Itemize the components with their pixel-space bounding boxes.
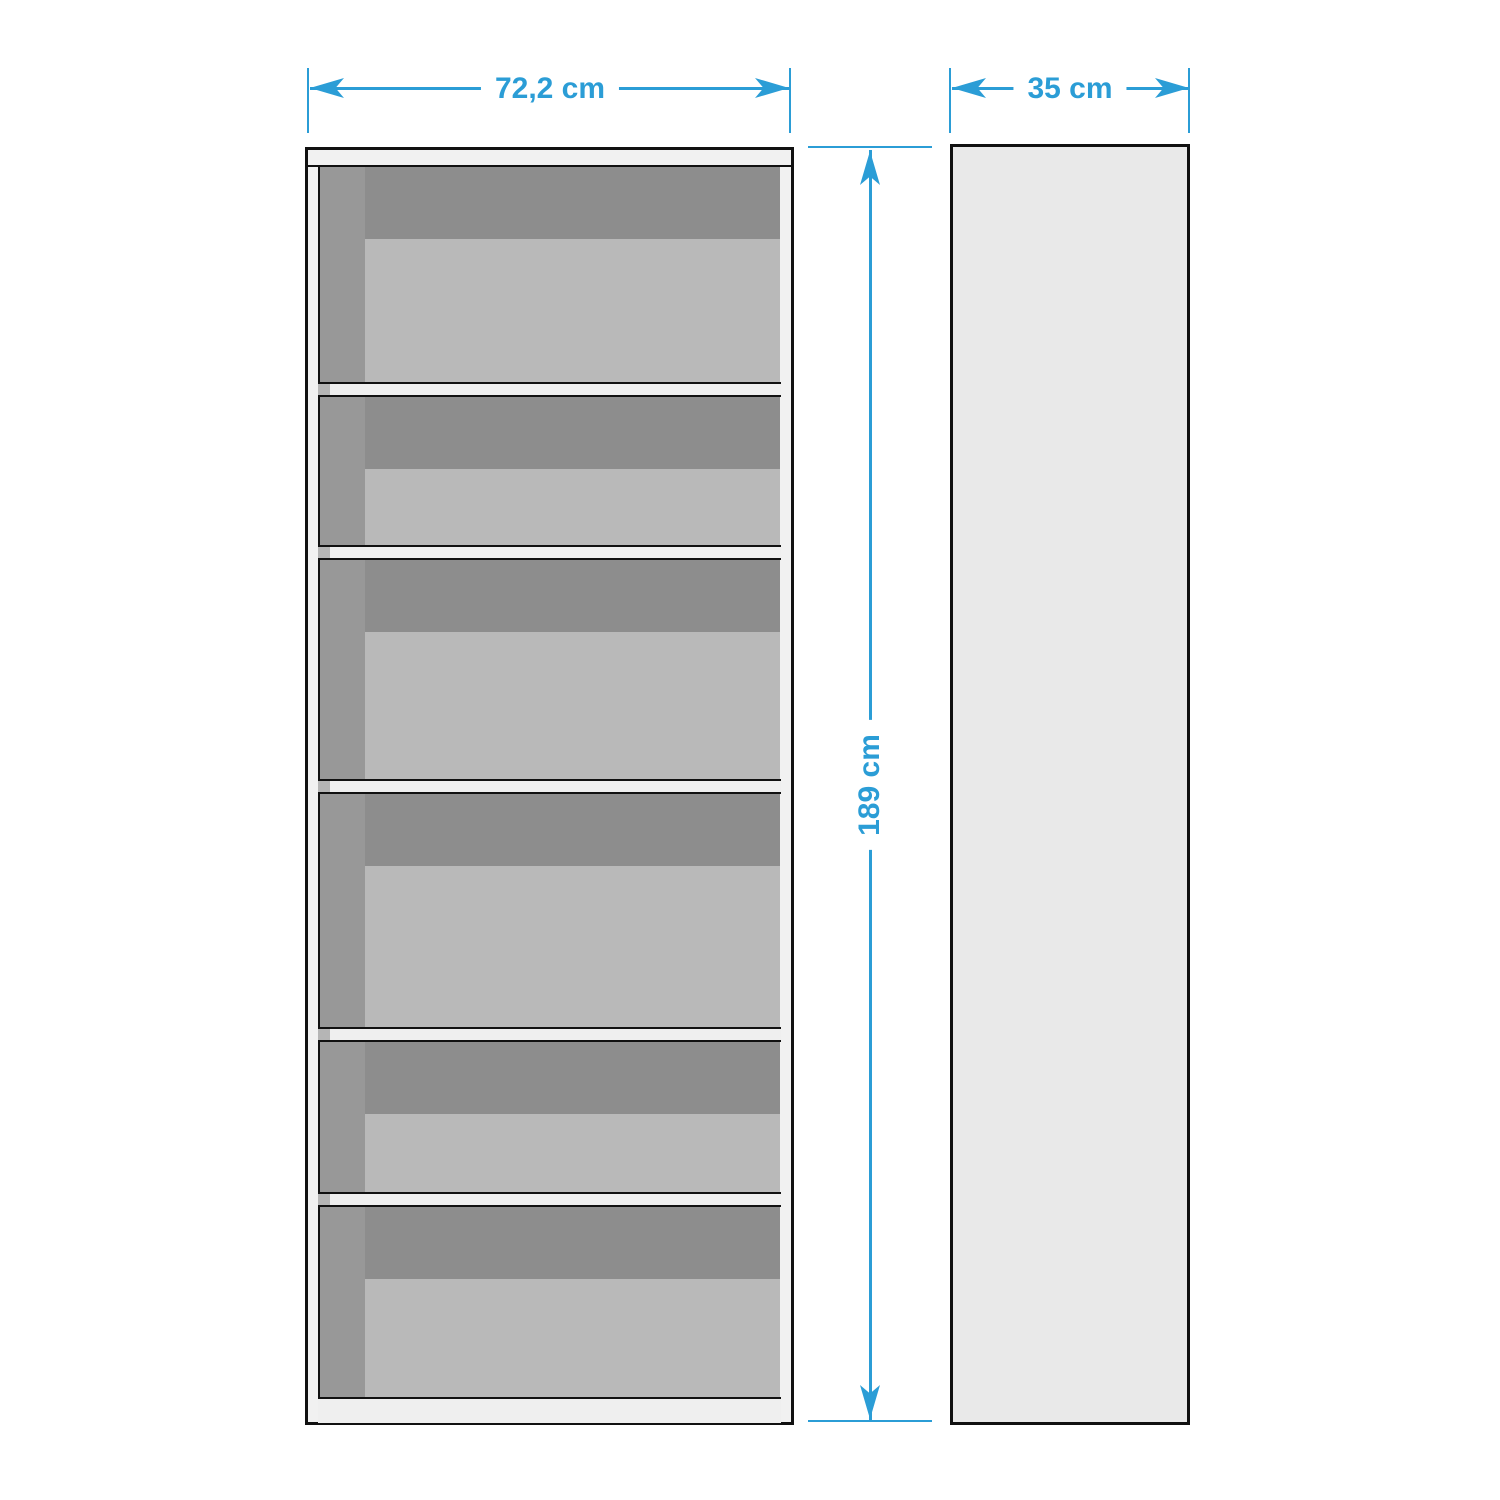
shelf-compartment-5: [318, 1042, 780, 1192]
extension-line: [1188, 68, 1190, 133]
compartment-back-panel: [365, 469, 780, 545]
compartment-back-panel: [365, 632, 780, 779]
dimension-diagram: 72,2 cm 35 cm 189 cm: [0, 0, 1500, 1500]
height-dimension-label: 189 cm: [852, 720, 888, 850]
shelf-compartment-4: [318, 794, 780, 1027]
compartment-top-shadow: [365, 167, 780, 239]
compartment-back-panel: [365, 1114, 780, 1192]
extension-line: [808, 146, 932, 148]
divider-shadow: [318, 547, 330, 558]
compartment-back-panel: [365, 866, 780, 1027]
divider-shadow: [318, 781, 330, 792]
bottom-panel: [318, 1397, 781, 1423]
depth-dimension-label: 35 cm: [1013, 71, 1126, 107]
extension-line: [789, 68, 791, 133]
compartment-top-shadow: [365, 560, 780, 632]
divider-shadow: [318, 384, 330, 395]
compartment-top-shadow: [365, 1207, 780, 1279]
extension-line: [808, 1420, 932, 1422]
shelf-divider-2: [318, 545, 781, 560]
compartment-back-panel: [365, 1279, 780, 1397]
shelf-compartment-6: [318, 1207, 780, 1397]
compartment-top-shadow: [365, 397, 780, 469]
shelf-divider-4: [318, 1027, 781, 1042]
shelf-divider-1: [318, 382, 781, 397]
shelf-divider-3: [318, 779, 781, 794]
divider-shadow: [318, 1029, 330, 1040]
divider-shadow: [318, 1194, 330, 1205]
width-dimension-label: 72,2 cm: [481, 71, 619, 107]
shelf-compartment-3: [318, 560, 780, 779]
extension-line: [949, 68, 951, 133]
compartment-top-shadow: [365, 794, 780, 866]
compartment-back-panel: [365, 239, 780, 382]
shelf-compartment-1: [318, 167, 780, 382]
compartment-top-shadow: [365, 1042, 780, 1114]
bookcase-side-view: [950, 144, 1190, 1425]
shelf-compartment-2: [318, 397, 780, 545]
extension-line: [307, 68, 309, 133]
shelf-divider-5: [318, 1192, 781, 1207]
